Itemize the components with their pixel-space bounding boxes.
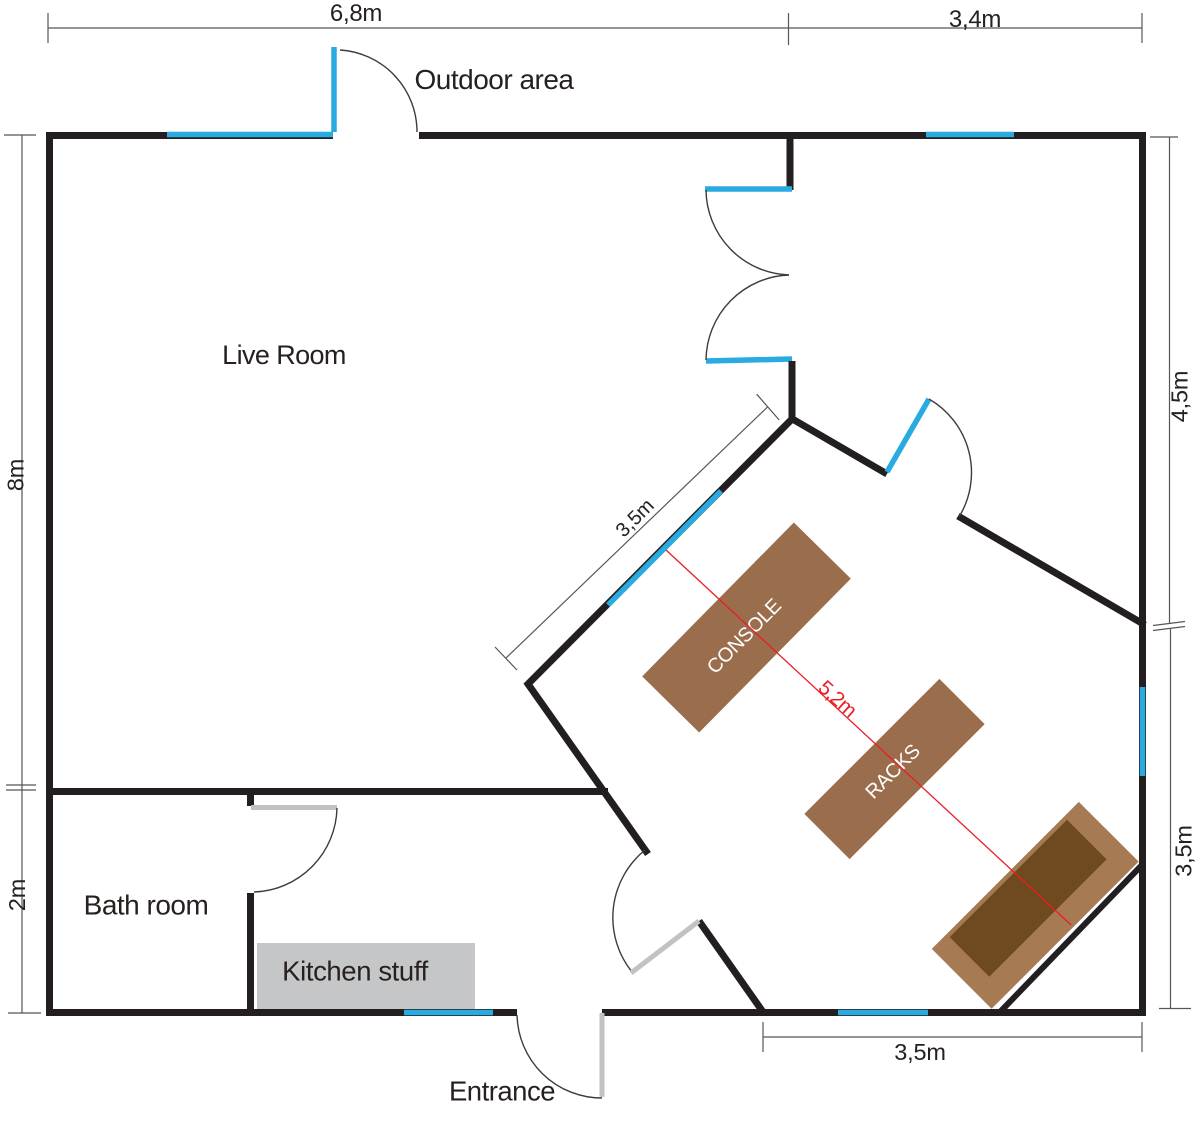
svg-text:3,4m: 3,4m [949, 6, 1001, 33]
svg-text:Outdoor area: Outdoor area [415, 64, 575, 95]
svg-text:Kitchen stuff: Kitchen stuff [282, 956, 428, 987]
svg-text:4,5m: 4,5m [1167, 371, 1193, 422]
svg-text:2m: 2m [4, 879, 30, 911]
svg-text:3,5m: 3,5m [1171, 825, 1197, 876]
svg-text:3,5m: 3,5m [894, 1039, 945, 1065]
svg-text:Entrance: Entrance [449, 1076, 555, 1107]
svg-text:Live Room: Live Room [222, 340, 346, 370]
svg-text:Bath room: Bath room [84, 890, 209, 921]
svg-text:8m: 8m [3, 459, 29, 491]
svg-text:6,8m: 6,8m [330, 0, 382, 27]
